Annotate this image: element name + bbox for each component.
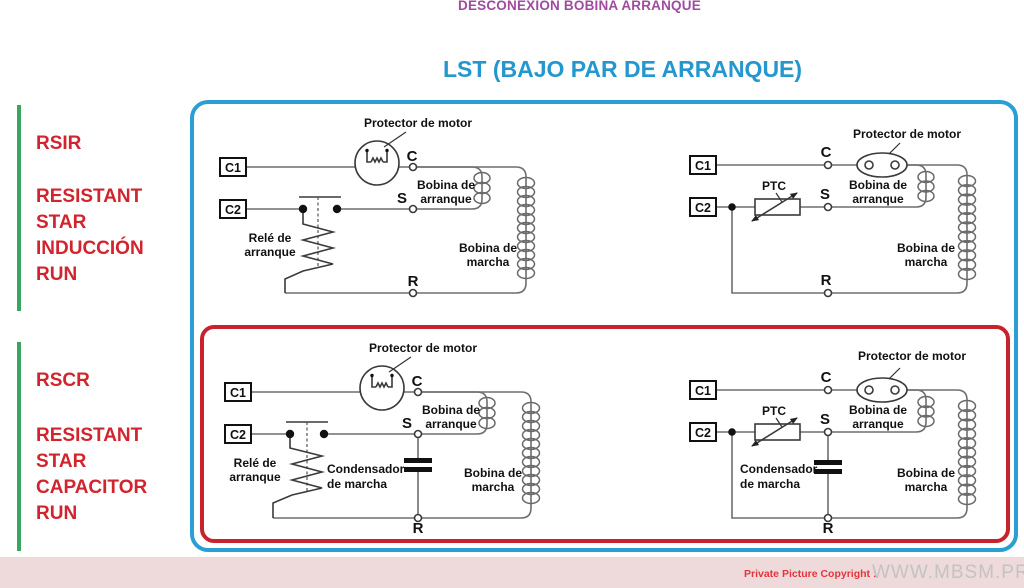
run-capacitor [404,458,432,472]
relay-label-1: Relé de [249,231,292,245]
c2-label: C2 [230,428,246,442]
run-winding-label-2: marcha [467,255,510,269]
ptc-resistor [752,193,800,221]
rsir-line-1: RESISTANT [36,184,144,210]
terminal-s-label: S [402,415,412,432]
terminal-pin-c [825,162,832,169]
rscr-line-2: STAR [36,449,147,475]
run-capacitor-label-1: Condensador [327,462,405,476]
motor-protector [360,357,411,410]
protector-leader-line [384,132,406,147]
c1-label: C1 [695,384,711,398]
terminal-pin-s [410,206,417,213]
c1-label: C1 [225,161,241,175]
page-subtitle: DESCONEXIÓN BOBINA ARRANQUE [458,0,701,13]
rsir-line-2: STAR [36,210,144,236]
section-label-rsir: RSIR RESISTANT STAR INDUCCIÓN RUN [36,133,144,288]
terminal-c-label: C [412,373,423,390]
c1-label: C1 [230,386,246,400]
section-label-rscr: RSCR RESISTANT STAR CAPACITOR RUN [36,370,147,527]
c2-label: C2 [225,203,241,217]
relay-label-2: arranque [229,470,281,484]
run-winding-label-2: marcha [905,255,948,269]
terminal-pin-s [415,431,422,438]
terminal-pin-r [410,290,417,297]
motor-protector [857,143,907,177]
ptc-label: PTC [762,179,786,193]
junction-dot [728,428,736,436]
c2-label: C2 [695,426,711,440]
protector-label: Protector de motor [858,349,966,363]
run-capacitor [814,460,842,474]
relay-contact-dot [320,430,328,438]
start-winding-label-1: Bobina de [849,403,907,417]
terminal-s-label: S [820,411,830,428]
run-winding-label-2: marcha [905,480,948,494]
ptc-resistor [752,418,800,446]
section-accent-bar-rscr [17,342,21,551]
footer-strip: Private Picture Copyright : WWW.MBSM.PRO [0,557,1024,588]
terminal-pin-r [825,290,832,297]
start-winding-label-2: arranque [425,417,477,431]
wires [251,392,531,518]
protector-leader-line [889,368,900,379]
terminal-c-label: C [821,144,832,161]
c2-label: C2 [695,201,711,215]
run-capacitor-label-2: de marcha [327,477,387,491]
wires [246,167,526,293]
run-capacitor-label-1: Condensador [740,462,818,476]
run-winding-label-2: marcha [472,480,515,494]
terminal-r-label: R [823,520,834,537]
page: DESCONEXIÓN BOBINA ARRANQUE LST (BAJO PA… [0,0,1024,588]
junction-dot [728,203,736,211]
start-winding-label-2: arranque [420,192,472,206]
terminal-c-label: C [821,369,832,386]
terminal-s-label: S [397,190,407,207]
terminal-r-label: R [821,272,832,289]
start-winding-label-2: arranque [852,192,904,206]
relay-label-1: Relé de [234,456,277,470]
protector-leader-line [389,357,411,372]
protector-label: Protector de motor [369,341,477,355]
run-winding-label-1: Bobina de [897,466,955,480]
site-watermark: WWW.MBSM.PRO [872,562,1024,584]
circuit-rscr-relay: C1 C2 Protector de motor C S R Bobina de… [205,330,565,542]
terminal-r-label: R [408,273,419,290]
terminal-s-label: S [820,186,830,203]
motor-protector [355,132,406,185]
rsir-line-4: RUN [36,262,144,288]
terminal-pin-c [825,387,832,394]
relay-contact-dot [286,430,294,438]
circuit-rsir-ptc: C1 C2 Protector de motor PTC C S R Bobin… [670,105,1020,315]
terminal-pin-s [825,204,832,211]
start-winding-label-1: Bobina de [422,403,480,417]
start-winding-label-2: arranque [852,417,904,431]
rscr-acronym: RSCR [36,370,147,392]
run-winding-label-1: Bobina de [459,241,517,255]
rscr-line-1: RESISTANT [36,423,147,449]
start-winding-label-1: Bobina de [417,178,475,192]
terminal-pin-s [825,429,832,436]
rsir-acronym: RSIR [36,133,144,155]
wires [716,165,967,293]
protector-label: Protector de motor [853,127,961,141]
wires [716,390,967,518]
circuit-rsir-relay: C1 C2 Protector de motor C S R Bobina de… [200,105,560,315]
start-relay [273,422,328,518]
terminal-r-label: R [413,520,424,537]
protector-label: Protector de motor [364,116,472,130]
rsir-expansion: RESISTANT STAR INDUCCIÓN RUN [36,184,144,288]
ptc-label: PTC [762,404,786,418]
run-winding-label-1: Bobina de [464,466,522,480]
rscr-expansion: RESISTANT STAR CAPACITOR RUN [36,423,147,527]
start-winding-label-1: Bobina de [849,178,907,192]
motor-protector [857,368,907,402]
copyright-label: Private Picture Copyright : [744,568,876,580]
protector-leader-line [889,143,900,154]
relay-label-2: arranque [244,245,296,259]
circuit-rscr-ptc: C1 C2 Protector de motor PTC C S R Bobin… [670,330,1020,542]
rscr-line-4: RUN [36,501,147,527]
rsir-line-3: INDUCCIÓN [36,236,144,262]
section-accent-bar-rsir [17,105,21,311]
relay-contact-dot [299,205,307,213]
rscr-line-3: CAPACITOR [36,475,147,501]
run-winding-label-1: Bobina de [897,241,955,255]
relay-contact-dot [333,205,341,213]
run-capacitor-label-2: de marcha [740,477,800,491]
terminal-c-label: C [407,148,418,165]
c1-label: C1 [695,159,711,173]
page-title: LST (BAJO PAR DE ARRANQUE) [443,56,802,83]
